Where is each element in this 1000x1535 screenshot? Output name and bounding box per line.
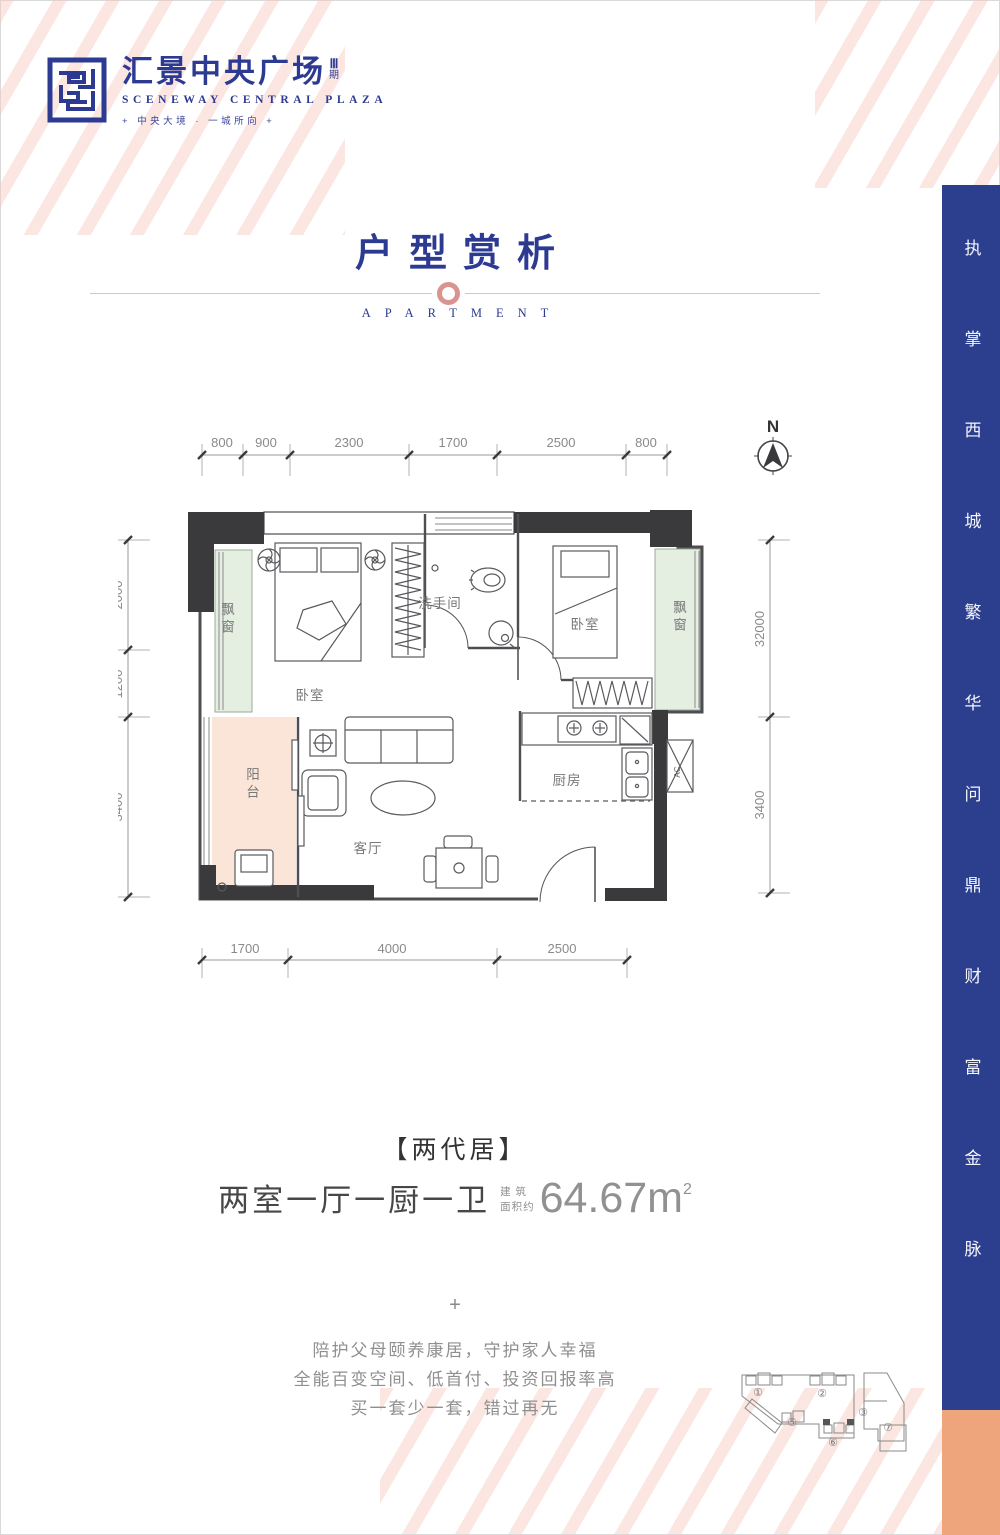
- dim-top-6: 800: [635, 435, 657, 450]
- siteplan-map: ① ② ③ ⑤ ⑥ ⑦: [728, 1363, 913, 1468]
- sidebar-slogan: 执掌西城繁华问鼎财富金脉: [963, 239, 980, 1331]
- ac-platform: [667, 740, 693, 792]
- unit-area-superscript: 2: [683, 1181, 692, 1198]
- room-label-kitchen: 厨房: [539, 769, 595, 789]
- shower-icon: [432, 565, 438, 571]
- brand-name-cn: 汇景中央广场: [122, 56, 326, 87]
- sidebar-banner: 执掌西城繁华问鼎财富金脉: [942, 185, 1000, 1410]
- north-label: N: [767, 417, 779, 436]
- siteplan-num-2: ②: [817, 1388, 827, 1400]
- dim-bottom-1: 1700: [231, 941, 260, 956]
- dim-right-1: 32000: [752, 611, 767, 647]
- title-ornament-icon: [437, 282, 460, 305]
- sliding-door-panel: [298, 796, 304, 846]
- brand-phase-number: Ⅲ: [330, 57, 339, 70]
- page-subtitle: APARTMENT: [0, 306, 910, 321]
- brand-phase-unit: 期: [329, 71, 339, 81]
- siteplan-num-6: ⑥: [828, 1437, 838, 1449]
- brand-name-en: SCENEWAY CENTRAL PLAZA: [122, 94, 387, 106]
- sink-icon: [489, 621, 515, 648]
- dim-bottom-2: 4000: [378, 941, 407, 956]
- wardrobe2-icon: [573, 678, 652, 708]
- brand-phase: Ⅲ 期: [329, 57, 339, 81]
- sliding-door-panel: [292, 740, 298, 790]
- dim-top-2: 900: [255, 435, 277, 450]
- siteplan-building-block: [823, 1419, 830, 1425]
- siteplan-building-block: [847, 1419, 854, 1425]
- dim-top-1: 800: [211, 435, 233, 450]
- toilet-icon: [469, 568, 505, 592]
- unit-area-prefix: 建 筑 面积约: [500, 1185, 535, 1214]
- single-bed-icon: [553, 546, 617, 658]
- brand-logo-mark-icon: [46, 56, 108, 124]
- unit-summary: 两室一厅一厨一卫 建 筑 面积约 64.67m2: [0, 1178, 910, 1219]
- unit-area-value: 64.67m2: [540, 1178, 692, 1219]
- side-table-icon: [310, 730, 336, 756]
- north-compass-icon: N: [754, 417, 792, 475]
- unit-area-prefix-bottom: 面积约: [500, 1201, 535, 1213]
- dim-left-2: 1200: [118, 670, 125, 699]
- stripes-top-right: [815, 0, 1000, 188]
- siteplan-num-1: ①: [753, 1387, 763, 1399]
- sofa-icon: [345, 717, 453, 763]
- promo-plus-icon: +: [0, 1294, 910, 1317]
- room-label-bedroom-right: 卧室: [557, 613, 613, 633]
- unit-type-title: 【两代居】: [0, 1130, 910, 1166]
- promo-line-1: 陪护父母颐养康居，守护家人幸福: [0, 1336, 910, 1365]
- unit-area-prefix-top: 建 筑: [500, 1186, 527, 1198]
- double-bed-icon: [275, 543, 361, 661]
- dim-bottom-3: 2500: [548, 941, 577, 956]
- dim-top-5: 2500: [547, 435, 576, 450]
- brand-tagline: + 中央大境 · 一城所向 +: [122, 113, 387, 127]
- dining-table-icon: [424, 836, 498, 888]
- siteplan-building-numbers: ① ② ③ ⑤ ⑥ ⑦: [753, 1387, 893, 1449]
- siteplan-num-7: ⑦: [883, 1422, 893, 1434]
- unit-layout: 两室一厅一厨一卫: [218, 1182, 490, 1219]
- siteplan-num-3: ③: [858, 1407, 868, 1419]
- room-label-living: 客厅: [340, 837, 396, 857]
- dim-left-3: 3400: [118, 793, 125, 822]
- room-label-bay-left: 飘窗: [216, 595, 236, 643]
- dim-left-1: 2000: [118, 581, 125, 610]
- dim-top-3: 2300: [335, 435, 364, 450]
- poster-page: 汇景中央广场 Ⅲ 期 SCENEWAY CENTRAL PLAZA + 中央大境…: [0, 0, 1000, 1535]
- dim-top-4: 1700: [439, 435, 468, 450]
- sidebar-orange-block: [942, 1410, 1000, 1535]
- room-label-balcony: 阳台: [241, 760, 261, 808]
- dim-right-2: 3400: [752, 791, 767, 820]
- room-label-bay-right: 飘窗: [668, 593, 688, 641]
- page-title: 户型赏析: [0, 222, 910, 277]
- room-label-bedroom-left: 卧室: [282, 684, 338, 704]
- unit-area-number: 64.67m: [540, 1174, 683, 1222]
- room-label-bathroom: 洗手间: [404, 592, 476, 612]
- siteplan-num-5: ⑤: [787, 1417, 797, 1429]
- top-wall-band: [264, 512, 514, 534]
- brand-logo: 汇景中央广场 Ⅲ 期 SCENEWAY CENTRAL PLAZA + 中央大境…: [46, 56, 387, 127]
- ac-label: AC: [673, 766, 682, 777]
- floorplan-drawing: 800 900 2300 1700 2500 800 1700 4000 250…: [118, 400, 832, 995]
- coffee-table-icon: [371, 781, 435, 815]
